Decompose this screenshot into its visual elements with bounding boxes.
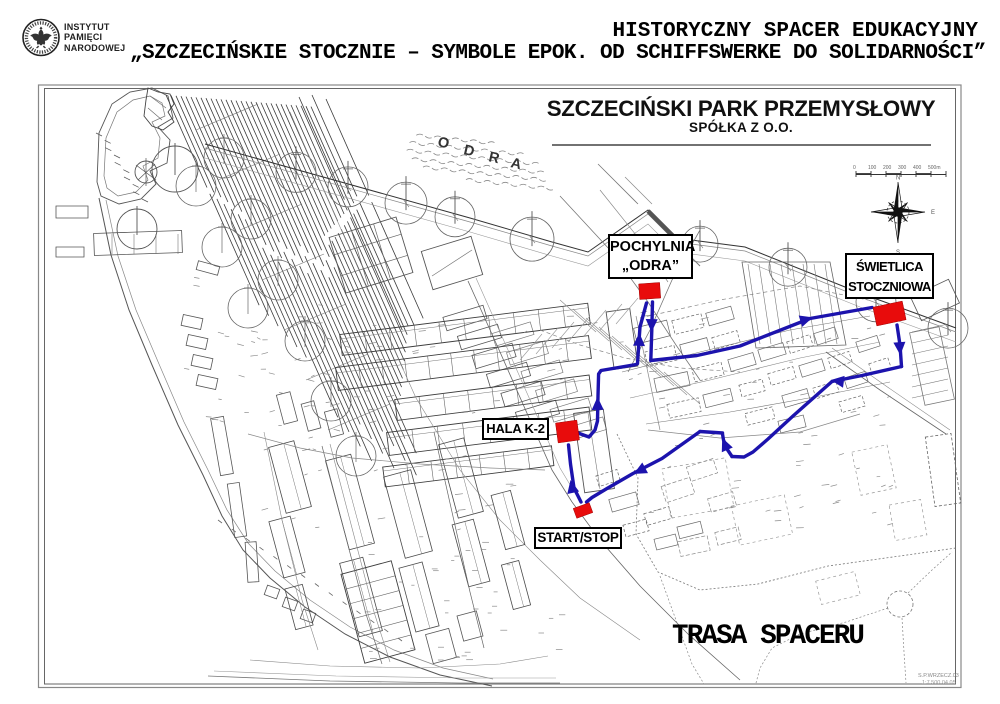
svg-text:R: R: [487, 149, 501, 167]
svg-text:200: 200: [883, 165, 892, 171]
svg-text:1:7.500 04.05: 1:7.500 04.05: [922, 680, 956, 686]
svg-text:0: 0: [853, 165, 856, 171]
svg-text:100: 100: [868, 165, 877, 171]
svg-text:300: 300: [898, 165, 907, 171]
svg-text:500m: 500m: [928, 165, 941, 171]
svg-text:E: E: [931, 210, 935, 216]
svg-text:400: 400: [913, 165, 922, 171]
svg-text:N: N: [896, 176, 900, 182]
svg-text:A: A: [509, 155, 523, 173]
svg-text:S.P.WRZECZ.03: S.P.WRZECZ.03: [918, 673, 959, 679]
svg-text:D: D: [462, 142, 476, 160]
svg-text:O: O: [436, 134, 451, 152]
